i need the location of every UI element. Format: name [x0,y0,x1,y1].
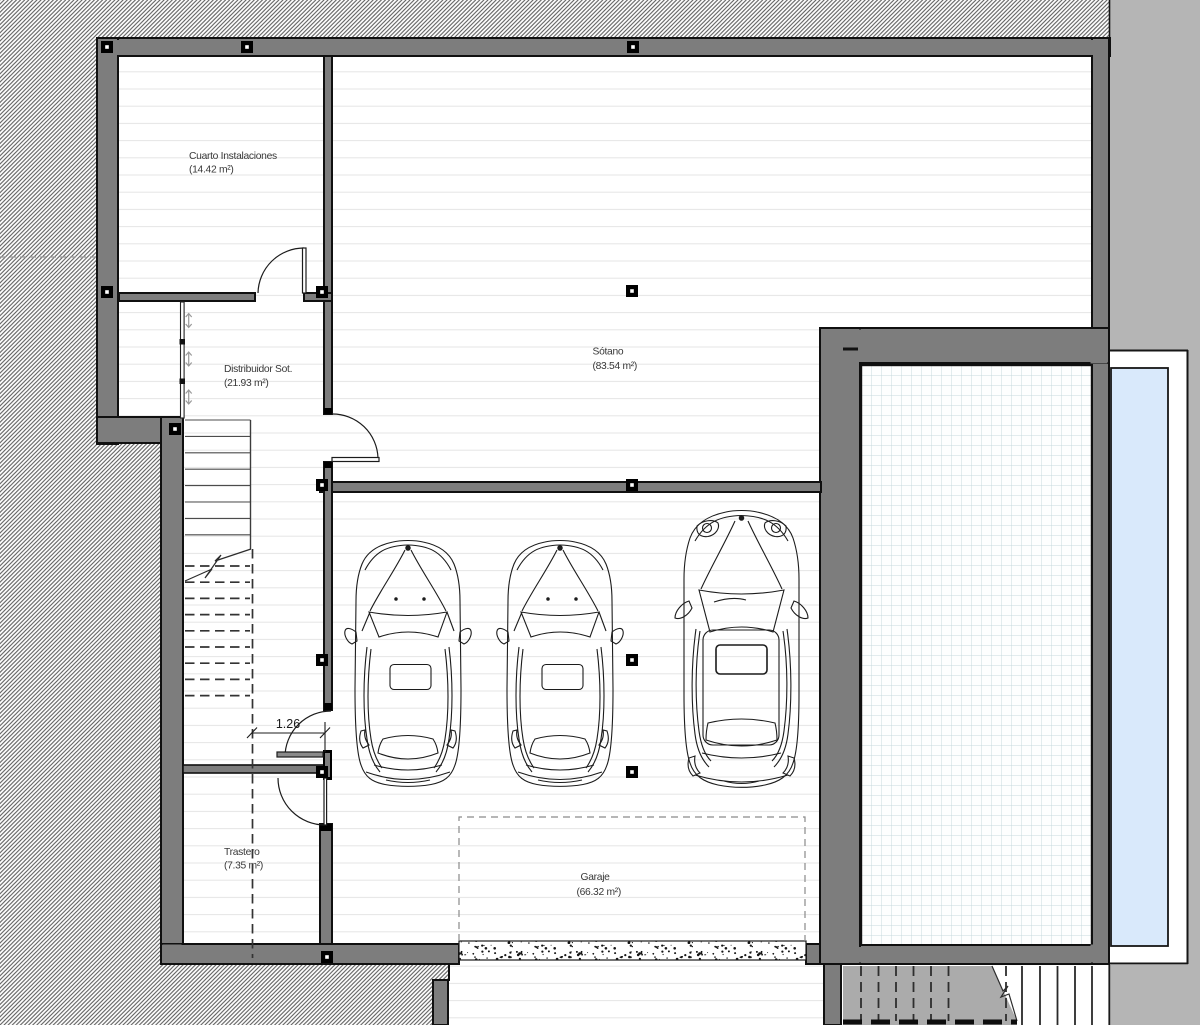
svg-text:Sótano: Sótano [593,347,624,358]
svg-text:(66.32 m²): (66.32 m²) [577,887,622,898]
svg-text:Garaje: Garaje [581,872,611,883]
svg-text:Cuarto Instalaciones: Cuarto Instalaciones [189,151,277,162]
svg-text:1.26: 1.26 [276,717,300,731]
svg-text:Distribuidor Sot.: Distribuidor Sot. [224,364,292,375]
svg-text:Trastero: Trastero [224,847,260,858]
svg-text:(14.42 m²): (14.42 m²) [189,165,234,176]
svg-text:(21.93 m²): (21.93 m²) [224,378,269,389]
svg-text:(7.35 m²): (7.35 m²) [224,861,263,872]
svg-text:(83.54 m²): (83.54 m²) [593,361,638,372]
